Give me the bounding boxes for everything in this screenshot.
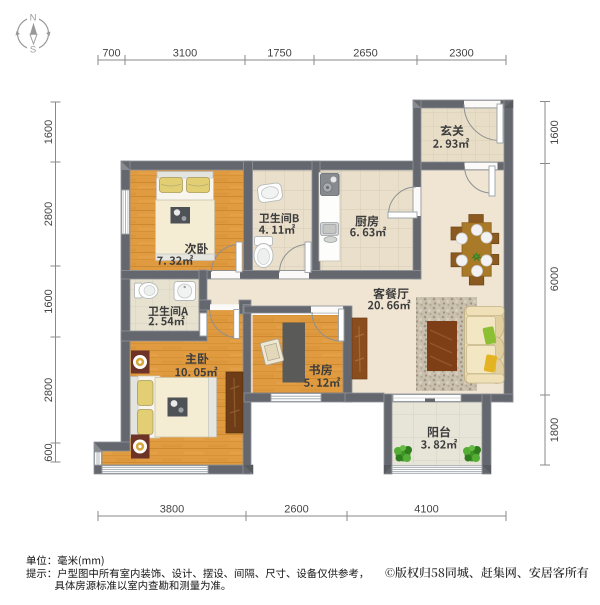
svg-text:1600: 1600 — [43, 289, 55, 313]
svg-text:1600: 1600 — [43, 120, 55, 144]
svg-text:1800: 1800 — [549, 418, 561, 442]
svg-text:700: 700 — [102, 48, 120, 60]
svg-text:S: S — [30, 45, 36, 56]
svg-text:2800: 2800 — [43, 202, 55, 226]
svg-text:2600: 2600 — [284, 504, 308, 516]
svg-text:2650: 2650 — [353, 48, 377, 60]
svg-text:1750: 1750 — [267, 48, 291, 60]
svg-text:1600: 1600 — [549, 120, 561, 144]
svg-text:2800: 2800 — [43, 378, 55, 402]
svg-text:6000: 6000 — [549, 267, 561, 291]
svg-text:3800: 3800 — [160, 504, 184, 516]
svg-text:600: 600 — [43, 443, 55, 461]
svg-text:3100: 3100 — [173, 48, 197, 60]
svg-text:4100: 4100 — [414, 504, 438, 516]
svg-text:2300: 2300 — [449, 48, 473, 60]
svg-text:N: N — [30, 13, 37, 24]
